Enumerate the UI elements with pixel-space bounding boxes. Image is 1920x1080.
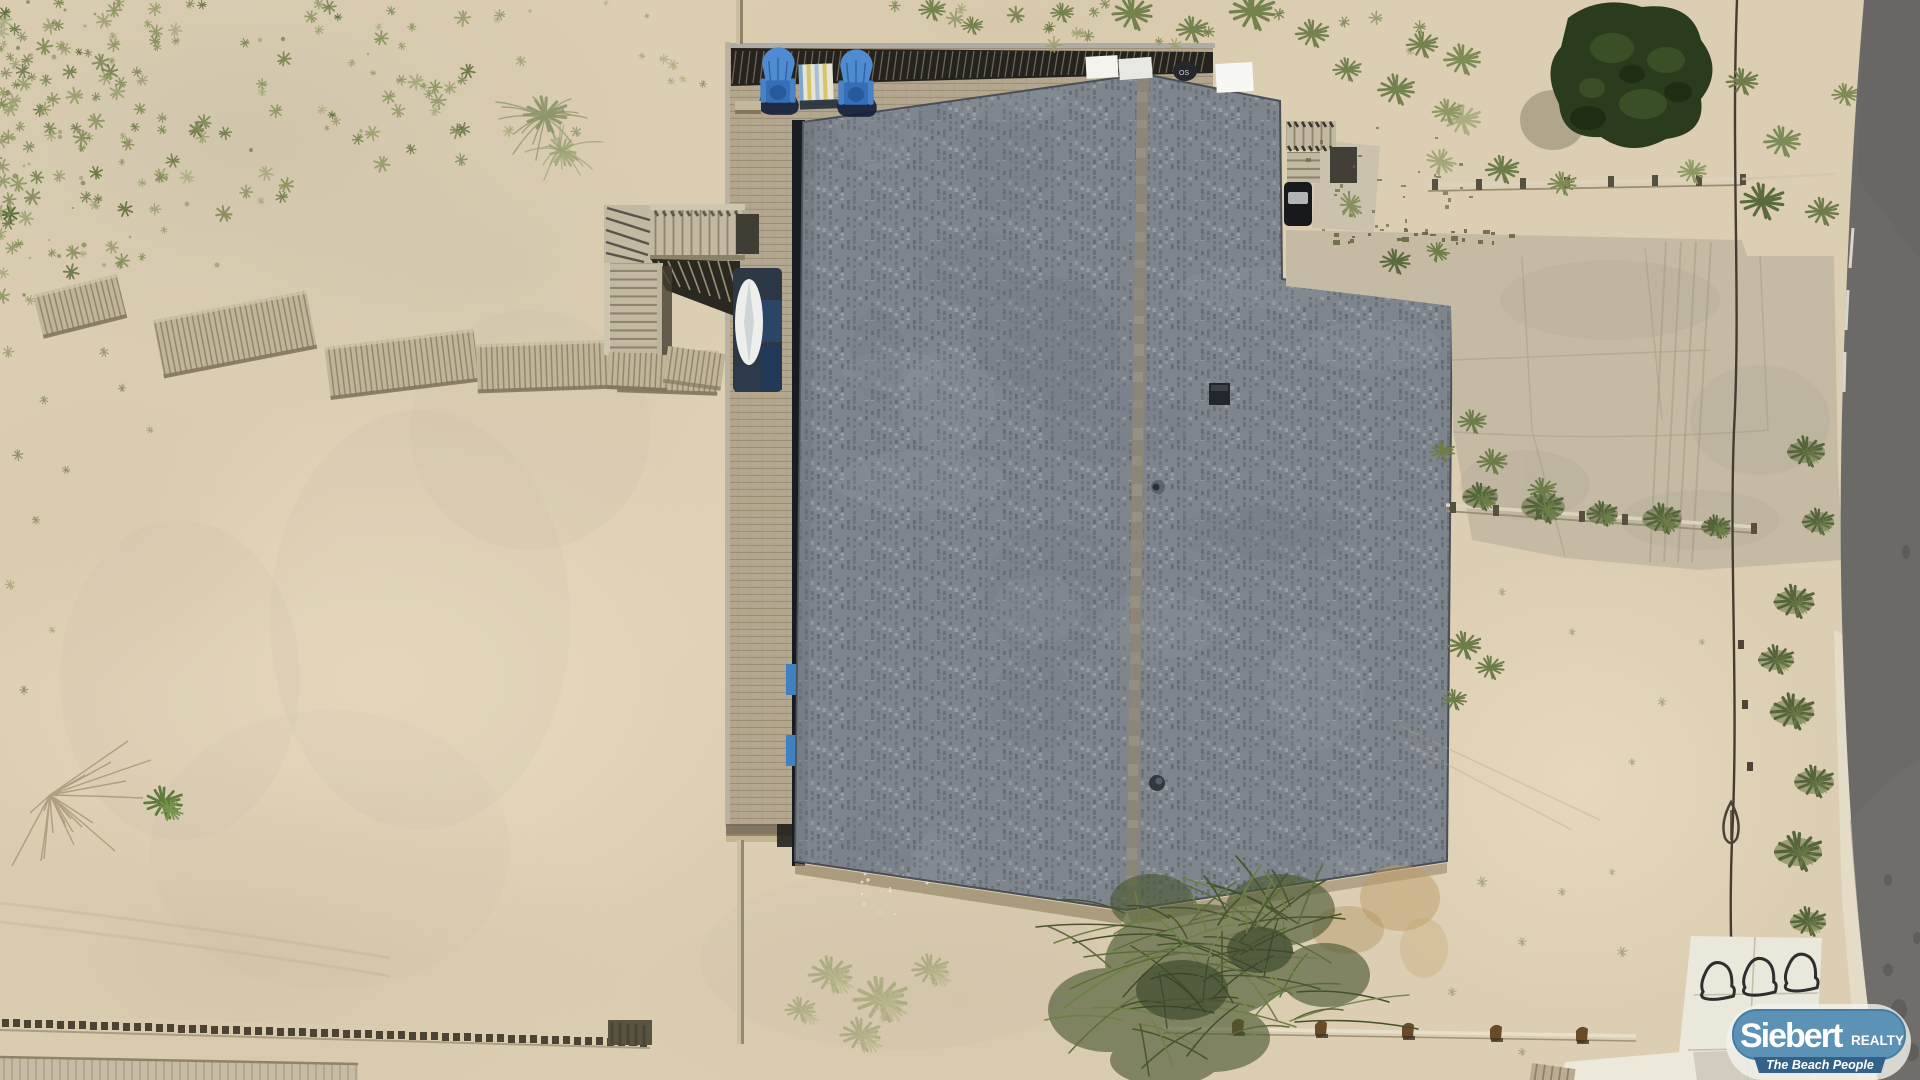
svg-text:Siebert: Siebert bbox=[1740, 1017, 1843, 1055]
svg-text:OS: OS bbox=[1179, 70, 1189, 77]
svg-text:REALTY: REALTY bbox=[1851, 1033, 1904, 1048]
svg-text:The Beach People: The Beach People bbox=[1766, 1058, 1874, 1072]
